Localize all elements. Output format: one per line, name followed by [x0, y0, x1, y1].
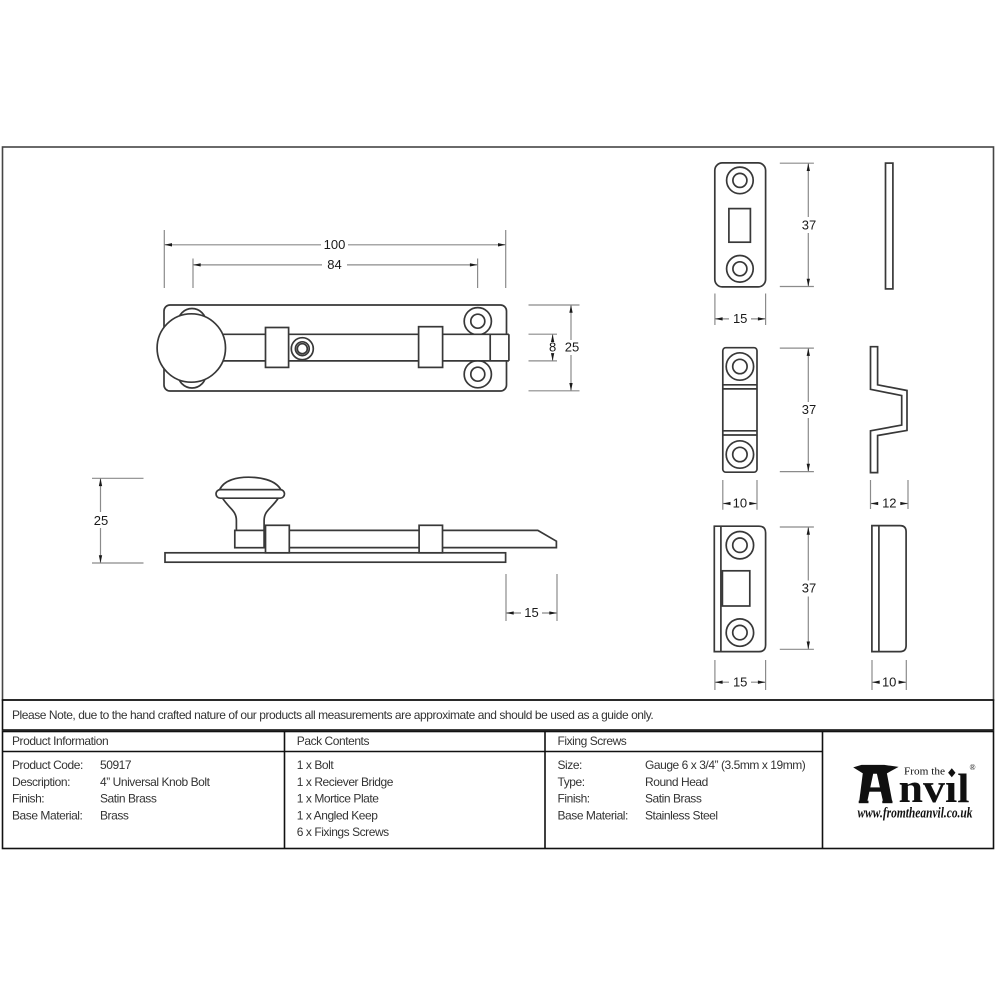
svg-text:6 x Fixings Screws: 6 x Fixings Screws [297, 825, 389, 839]
svg-text:Product Information: Product Information [12, 734, 108, 748]
svg-text:Please Note, due to the hand c: Please Note, due to the hand crafted nat… [12, 708, 653, 722]
svg-text:10: 10 [733, 496, 747, 511]
svg-text:50917: 50917 [100, 758, 132, 772]
svg-text:10: 10 [882, 674, 896, 689]
svg-text:1 x Bolt: 1 x Bolt [297, 758, 335, 772]
svg-text:100: 100 [324, 237, 346, 252]
svg-text:Size:: Size: [558, 758, 583, 772]
svg-text:15: 15 [733, 311, 747, 326]
svg-text:nvil: nvil [899, 765, 970, 811]
svg-text:Fixing Screws: Fixing Screws [558, 734, 627, 748]
svg-text:Product Code:: Product Code: [12, 758, 83, 772]
svg-text:37: 37 [802, 402, 816, 417]
svg-text:Finish:: Finish: [558, 792, 590, 806]
svg-text:15: 15 [524, 605, 538, 620]
svg-text:12: 12 [882, 496, 896, 511]
svg-text:®: ® [970, 763, 976, 772]
svg-text:84: 84 [327, 257, 341, 272]
svg-text:Pack Contents: Pack Contents [297, 734, 370, 748]
svg-text:Brass: Brass [100, 808, 129, 822]
svg-text:www.fromtheanvil.co.uk: www.fromtheanvil.co.uk [858, 806, 974, 822]
svg-text:Stainless Steel: Stainless Steel [645, 808, 718, 822]
svg-text:37: 37 [802, 581, 816, 596]
svg-text:Round Head: Round Head [645, 775, 708, 789]
svg-text:8: 8 [549, 340, 556, 355]
svg-text:Satin Brass: Satin Brass [100, 792, 157, 806]
svg-text:Base Material:: Base Material: [12, 808, 83, 822]
svg-text:1 x Angled Keep: 1 x Angled Keep [297, 808, 378, 822]
svg-text:4” Universal Knob Bolt: 4” Universal Knob Bolt [100, 775, 211, 789]
svg-text:Base Material:: Base Material: [558, 808, 629, 822]
svg-text:25: 25 [565, 340, 579, 355]
svg-text:25: 25 [94, 513, 108, 528]
svg-text:1 x Reciever Bridge: 1 x Reciever Bridge [297, 775, 394, 789]
svg-text:Gauge 6 x 3/4” (3.5mm x 19mm): Gauge 6 x 3/4” (3.5mm x 19mm) [645, 758, 806, 772]
svg-text:1 x Mortice Plate: 1 x Mortice Plate [297, 792, 379, 806]
svg-text:Satin Brass: Satin Brass [645, 792, 702, 806]
svg-text:15: 15 [733, 674, 747, 689]
svg-text:37: 37 [802, 217, 816, 232]
svg-text:Type:: Type: [558, 775, 585, 789]
svg-text:Description:: Description: [12, 775, 70, 789]
svg-text:Finish:: Finish: [12, 792, 44, 806]
